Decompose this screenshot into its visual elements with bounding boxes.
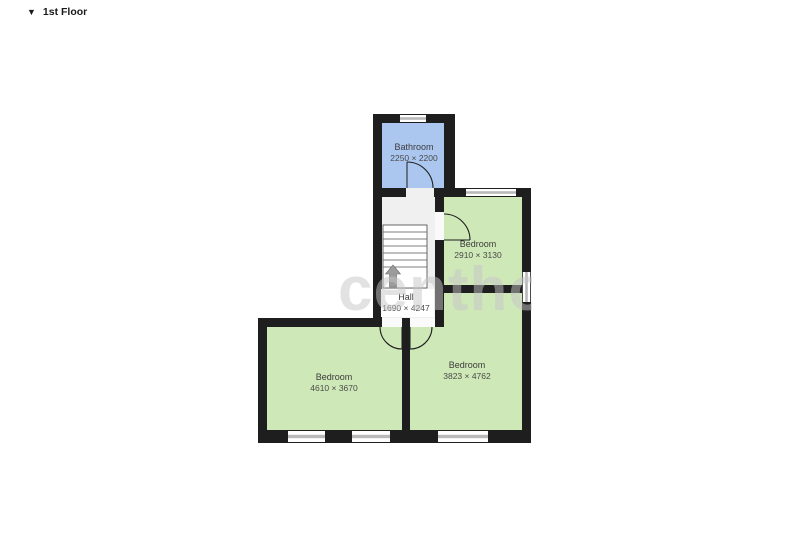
hall-label: Hall 1690 × 4247	[381, 289, 434, 317]
bedroom-top-right-name: Bedroom	[460, 239, 497, 249]
wall-bathroom-right	[444, 114, 455, 188]
opening-hall-to-tr	[435, 212, 444, 240]
wall-hall-right-upper	[435, 196, 444, 212]
wall-bedrooms-right-divider	[435, 285, 522, 293]
floor-label: 1st Floor	[43, 7, 87, 18]
window-bl-bottom-1	[288, 431, 325, 442]
floor-plan-svg: Bathroom 2250 × 2200 Bedroom 2910 × 3130…	[0, 0, 787, 550]
bedroom-bottom-left-label: Bedroom 4610 × 3670	[310, 372, 358, 393]
window-bathroom-top	[400, 115, 426, 122]
bedroom-bottom-right-floor-ext	[410, 327, 444, 430]
window-bl-bottom-2	[352, 431, 390, 442]
wall-hall-right-lower	[435, 240, 444, 327]
opening-hall-to-br	[410, 318, 435, 327]
bedroom-bottom-right-label: Bedroom 3823 × 4762	[443, 360, 491, 381]
hall-name: Hall	[398, 292, 414, 302]
bathroom-label: Bathroom 2250 × 2200	[390, 142, 438, 163]
bedroom-bottom-right-dimensions: 3823 × 4762	[443, 371, 491, 381]
hall-dimensions: 1690 × 4247	[382, 303, 430, 313]
window-br-bottom	[438, 431, 488, 442]
opening-hall-to-bl	[382, 318, 402, 327]
collapse-triangle-icon: ▼	[27, 8, 36, 17]
bedroom-top-right-label: Bedroom 2910 × 3130	[454, 239, 502, 260]
wall-bedroom-bl-left	[258, 318, 267, 443]
bathroom-name: Bathroom	[394, 142, 433, 152]
bedroom-bottom-right-name: Bedroom	[449, 360, 486, 370]
hall-floor-door-threshold	[406, 188, 434, 197]
floor-section-toggle[interactable]: ▼ 1st Floor	[27, 7, 87, 18]
window-bedroom-tr-top	[466, 189, 516, 196]
wall-center-divider	[402, 318, 410, 434]
window-right-wall	[523, 272, 530, 302]
wall-left	[373, 114, 382, 327]
bedroom-bottom-left-name: Bedroom	[316, 372, 353, 382]
wall-right	[522, 188, 531, 443]
staircase	[383, 225, 427, 288]
wall-bathroom-bottom-left	[373, 188, 406, 197]
bedroom-top-right-dimensions: 2910 × 3130	[454, 250, 502, 260]
wall-bathroom-bottom-right	[434, 188, 455, 197]
wall-bedroom-bl-top	[258, 318, 379, 327]
floorplan-page: ▼ 1st Floor	[0, 0, 787, 550]
bedroom-bottom-left-dimensions: 4610 × 3670	[310, 383, 358, 393]
bathroom-dimensions: 2250 × 2200	[390, 153, 438, 163]
